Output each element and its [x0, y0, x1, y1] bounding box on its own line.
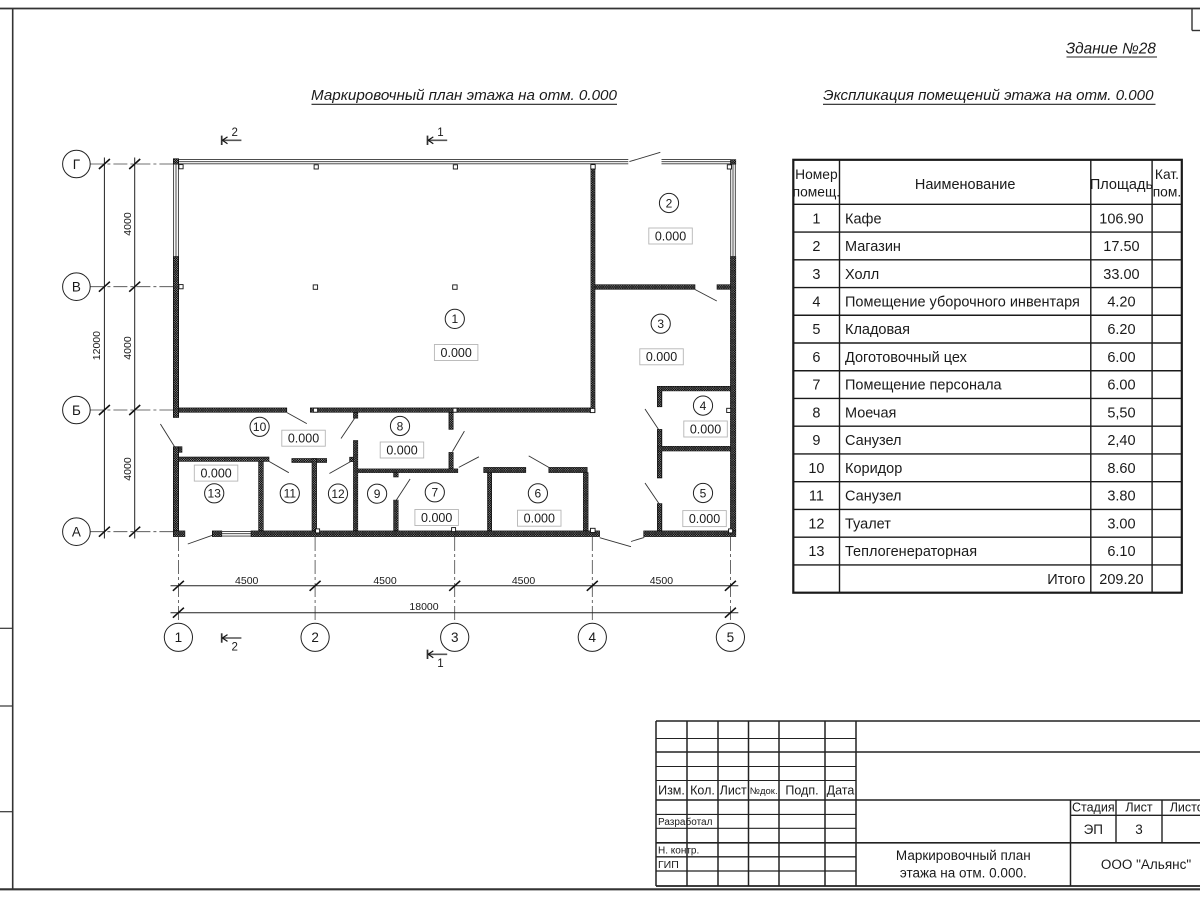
svg-text:В: В: [72, 280, 81, 295]
svg-text:Наименование: Наименование: [915, 177, 1016, 193]
svg-text:Стадия: Стадия: [1072, 801, 1115, 815]
svg-text:Итого: Итого: [1047, 572, 1085, 588]
svg-text:0.000: 0.000: [386, 443, 417, 457]
svg-text:0.000: 0.000: [690, 422, 721, 436]
svg-text:Кладовая: Кладовая: [845, 322, 910, 338]
svg-text:Кол.: Кол.: [690, 784, 715, 798]
svg-text:0.000: 0.000: [689, 512, 720, 526]
svg-text:0.000: 0.000: [646, 350, 677, 364]
svg-text:4000: 4000: [122, 336, 134, 360]
svg-text:1: 1: [451, 312, 458, 326]
svg-text:Холл: Холл: [845, 267, 879, 283]
svg-text:Туалет: Туалет: [845, 516, 891, 532]
svg-text:Лист: Лист: [1125, 801, 1152, 815]
svg-text:10: 10: [253, 420, 267, 434]
svg-text:Экспликация помещений этажа на: Экспликация помещений этажа на отм. 0.00…: [823, 87, 1154, 104]
svg-text:6.00: 6.00: [1107, 378, 1135, 394]
svg-text:Подп.: Подп.: [785, 784, 818, 798]
svg-text:2: 2: [231, 642, 237, 654]
svg-text:Номер: Номер: [795, 167, 838, 182]
svg-text:11: 11: [809, 489, 824, 505]
svg-text:помещ.: помещ.: [793, 185, 841, 200]
svg-text:пом.: пом.: [1153, 185, 1181, 200]
svg-text:Помещение уборочного инвентаря: Помещение уборочного инвентаря: [845, 294, 1080, 310]
svg-text:Магазин: Магазин: [845, 239, 901, 255]
svg-text:4500: 4500: [235, 575, 259, 587]
svg-text:Кат.: Кат.: [1155, 167, 1179, 182]
svg-text:3: 3: [1135, 822, 1143, 837]
svg-text:4500: 4500: [650, 575, 674, 587]
svg-text:0.000: 0.000: [288, 432, 319, 446]
svg-text:4: 4: [700, 399, 707, 413]
svg-text:3: 3: [657, 317, 664, 331]
svg-text:Дата: Дата: [827, 784, 855, 798]
svg-text:Н. контр.: Н. контр.: [658, 845, 699, 856]
svg-text:Теплогенераторная: Теплогенераторная: [845, 544, 977, 560]
svg-text:Разработал: Разработал: [658, 816, 713, 828]
svg-text:8: 8: [812, 405, 820, 421]
svg-text:Помещение персонала: Помещение персонала: [845, 378, 1003, 394]
svg-text:0.000: 0.000: [655, 229, 686, 243]
svg-text:4000: 4000: [122, 212, 134, 236]
svg-text:1: 1: [437, 658, 443, 670]
svg-text:209.20: 209.20: [1099, 572, 1143, 588]
svg-text:1: 1: [175, 630, 183, 645]
svg-text:1: 1: [812, 211, 820, 227]
svg-text:11: 11: [284, 487, 297, 501]
svg-text:2: 2: [231, 127, 237, 139]
svg-text:Изм.: Изм.: [658, 784, 685, 798]
svg-text:6.10: 6.10: [1107, 544, 1135, 560]
svg-text:10: 10: [808, 461, 824, 477]
svg-text:3: 3: [812, 267, 820, 283]
svg-text:А: А: [72, 525, 81, 540]
svg-text:Кафе: Кафе: [845, 211, 882, 227]
svg-text:1: 1: [437, 127, 443, 139]
svg-text:2,40: 2,40: [1107, 433, 1135, 449]
svg-text:4500: 4500: [373, 575, 397, 587]
svg-text:ГИП: ГИП: [658, 859, 679, 871]
svg-text:9: 9: [812, 433, 820, 449]
svg-text:Санузел: Санузел: [845, 433, 902, 449]
svg-text:5: 5: [700, 486, 707, 500]
svg-text:4: 4: [812, 294, 820, 310]
svg-text:Санузел: Санузел: [845, 489, 902, 505]
svg-text:5,50: 5,50: [1107, 405, 1135, 421]
svg-text:12000: 12000: [91, 331, 103, 360]
svg-text:4.20: 4.20: [1107, 294, 1135, 310]
svg-text:7: 7: [431, 486, 438, 500]
svg-text:6: 6: [812, 350, 820, 366]
svg-text:33.00: 33.00: [1103, 267, 1139, 283]
svg-text:18000: 18000: [409, 601, 438, 613]
svg-text:0.000: 0.000: [441, 346, 472, 360]
svg-text:Моечая: Моечая: [845, 405, 896, 421]
svg-text:7: 7: [812, 378, 820, 394]
svg-text:№док.: №док.: [750, 786, 778, 797]
svg-text:3.00: 3.00: [1107, 516, 1135, 532]
svg-text:3: 3: [451, 630, 459, 645]
svg-text:3.80: 3.80: [1107, 489, 1135, 505]
svg-text:6.20: 6.20: [1107, 322, 1135, 338]
svg-text:Коридор: Коридор: [845, 461, 902, 477]
svg-text:Лист: Лист: [720, 784, 747, 798]
svg-text:0.000: 0.000: [524, 512, 555, 526]
svg-text:2: 2: [311, 630, 319, 645]
svg-text:13: 13: [808, 544, 824, 560]
svg-text:8.60: 8.60: [1107, 461, 1135, 477]
svg-text:6: 6: [535, 487, 542, 501]
svg-text:ООО "Альянс": ООО "Альянс": [1101, 857, 1191, 872]
svg-text:2: 2: [666, 196, 673, 210]
svg-text:2: 2: [812, 239, 820, 255]
svg-text:Г: Г: [73, 157, 81, 172]
svg-text:8: 8: [397, 419, 404, 433]
svg-text:4: 4: [589, 630, 597, 645]
svg-text:Листов: Листов: [1170, 801, 1200, 815]
svg-text:0.000: 0.000: [421, 511, 452, 525]
svg-text:Б: Б: [72, 403, 81, 418]
svg-text:106.90: 106.90: [1099, 211, 1143, 227]
svg-text:12: 12: [331, 487, 345, 501]
svg-text:5: 5: [812, 322, 820, 338]
svg-text:Доготовочный цех: Доготовочный цех: [845, 350, 968, 366]
svg-text:6.00: 6.00: [1107, 350, 1135, 366]
svg-text:ЭП: ЭП: [1084, 822, 1103, 837]
svg-text:13: 13: [208, 487, 222, 501]
svg-text:5: 5: [727, 630, 735, 645]
svg-text:9: 9: [374, 487, 381, 501]
svg-text:0.000: 0.000: [200, 466, 231, 480]
svg-text:4500: 4500: [512, 575, 536, 587]
svg-text:этажа на отм. 0.000.: этажа на отм. 0.000.: [900, 866, 1027, 881]
svg-text:12: 12: [808, 516, 824, 532]
svg-text:Маркировочный план: Маркировочный план: [896, 848, 1031, 863]
svg-text:Здание №28: Здание №28: [1066, 41, 1157, 58]
svg-text:4000: 4000: [122, 457, 134, 481]
svg-text:Площадь: Площадь: [1090, 177, 1153, 193]
svg-text:Маркировочный план этажа на от: Маркировочный план этажа на отм. 0.000: [311, 87, 617, 104]
svg-text:17.50: 17.50: [1103, 239, 1139, 255]
